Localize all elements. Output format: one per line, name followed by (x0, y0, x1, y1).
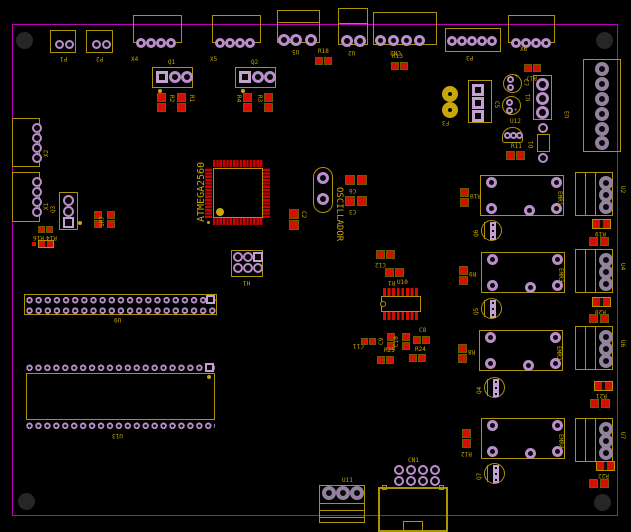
transistor-q2-label: Q2 (251, 60, 258, 66)
pad (589, 314, 598, 323)
pad (32, 133, 42, 143)
r24-label: R24 (415, 347, 426, 353)
connector-x2-label: X2 (44, 150, 50, 157)
pad (243, 263, 253, 273)
pad (354, 35, 366, 47)
pad (235, 38, 245, 48)
pad (460, 198, 469, 207)
pad (531, 38, 541, 48)
pad (507, 84, 514, 91)
mounting-hole (596, 32, 613, 49)
c12-label: C12 (375, 261, 386, 267)
q6-label: Q6 (474, 230, 480, 237)
terminal-line (585, 418, 586, 462)
pad (595, 62, 609, 76)
pad (485, 332, 496, 343)
pad (92, 40, 101, 49)
connector-u2-top-line (338, 23, 368, 24)
pad (290, 34, 302, 46)
pad (447, 36, 457, 46)
pad (32, 123, 42, 133)
cn1-label: CN1 (408, 458, 419, 464)
pad (601, 399, 610, 408)
pad (377, 356, 385, 364)
connector-p2-label: P2 (96, 55, 103, 61)
u11-label: U11 (342, 478, 353, 484)
pad (524, 64, 532, 72)
pad (391, 62, 399, 70)
r3-label: R3 (256, 95, 262, 102)
pad (146, 38, 156, 48)
c6-label: C6 (349, 187, 356, 193)
pad (487, 446, 498, 457)
pad (136, 38, 146, 48)
u11-line (319, 510, 365, 511)
r13-label: R13 (392, 54, 403, 60)
terminal-line (595, 249, 596, 293)
pad (490, 312, 496, 318)
pad (253, 252, 263, 262)
c2-label: C2 (300, 211, 306, 218)
dip-u13-pins-top (25, 363, 215, 373)
terminal-line (585, 326, 586, 370)
pad (166, 38, 176, 48)
pad (599, 277, 613, 291)
oscillator-label: OSCILLADOR (334, 187, 343, 241)
pad (289, 220, 299, 230)
connector-u5-label: U5 (292, 48, 299, 54)
r25-label: R25 (384, 348, 395, 354)
usb-tab (382, 485, 387, 490)
dip-u13-pins-bottom (25, 421, 215, 431)
pad (264, 71, 276, 83)
pad (595, 92, 609, 106)
u11-line (319, 503, 365, 504)
pad (385, 268, 394, 277)
r11-label: R11 (511, 144, 522, 150)
pad (406, 465, 416, 475)
terminal-line (595, 326, 596, 370)
pad (32, 207, 42, 217)
pad (486, 177, 497, 188)
mounting-hole (594, 494, 611, 511)
pad (38, 226, 45, 233)
pad (376, 250, 385, 259)
pad (487, 254, 498, 265)
connector-p3-label: P3 (466, 54, 473, 60)
mounting-hole (16, 32, 33, 49)
pad (402, 333, 410, 341)
dip-u13[interactable] (26, 373, 215, 420)
c7-plus: + (515, 74, 519, 80)
mcu-pin1-dot-outer (207, 221, 210, 224)
pad (245, 38, 255, 48)
pad (600, 479, 609, 488)
transistor-q3-label: Q3 (51, 206, 57, 213)
pad (493, 391, 499, 397)
q4-flat (487, 379, 488, 396)
pad (243, 93, 252, 102)
r21-label: R21 (596, 392, 607, 398)
pad (472, 97, 484, 109)
pad (599, 200, 613, 214)
q6-flat (484, 222, 485, 239)
c8-label: C8 (419, 328, 426, 334)
pad (32, 153, 42, 163)
pad (395, 268, 404, 277)
q7-flat (487, 465, 488, 482)
r10-label: R10 (470, 192, 481, 198)
pad (345, 196, 355, 206)
pad (472, 110, 484, 122)
pad (243, 103, 252, 112)
pad (55, 40, 64, 49)
c9-label: C9 (379, 338, 385, 345)
soic-u10[interactable] (381, 296, 421, 312)
pad (177, 103, 186, 112)
fuse-f3-hole (448, 92, 452, 96)
sr7-label: SR7 (100, 216, 106, 227)
pad (177, 93, 186, 102)
pad (477, 36, 487, 46)
pad (102, 40, 111, 49)
pad (516, 132, 523, 139)
connector-p1-label: P1 (60, 55, 67, 61)
pcb-canvas: P1 P2 X4 X5 U5 U2 CN2 P3 X6 R18 R13 (0, 0, 631, 532)
pad (590, 399, 599, 408)
pad (595, 107, 609, 121)
pad (506, 99, 513, 106)
pad (253, 263, 263, 273)
pad (472, 84, 484, 96)
soic-u10-label: U10 (397, 280, 408, 286)
pad (156, 38, 166, 48)
diode-d1[interactable] (537, 134, 550, 152)
pad (599, 354, 613, 368)
pad (516, 151, 525, 160)
r22-label: R22 (598, 472, 609, 478)
pad (486, 203, 497, 214)
diode-small (592, 219, 611, 229)
fuse-f3-hole (448, 108, 452, 112)
pad (400, 62, 408, 70)
pad (523, 360, 534, 371)
u1-label: U1 (526, 94, 532, 101)
pad (233, 263, 243, 273)
r1b-label: R1 (388, 279, 395, 285)
pad (322, 486, 336, 500)
connector-u2-top-label: U2 (348, 49, 355, 55)
terminal-line (585, 249, 586, 293)
pad (459, 266, 468, 275)
pad (317, 193, 329, 205)
pad-square (205, 363, 214, 372)
pad (402, 342, 410, 350)
relay-emr1-label: EMR1 (556, 191, 562, 205)
terminal-u4-label: U4 (619, 263, 625, 270)
r9-label: R9 (469, 270, 476, 276)
pad (457, 36, 467, 46)
pad (264, 103, 273, 112)
u11-line (319, 517, 365, 518)
terminal-line (595, 418, 596, 462)
pad (32, 197, 42, 207)
pin1-dot (78, 221, 82, 225)
connector-x6-label: X6 (520, 47, 527, 53)
header-u9[interactable] (24, 294, 217, 315)
pad (485, 358, 496, 369)
pad (460, 188, 469, 197)
r19-label: R19 (595, 230, 606, 236)
pad (169, 71, 181, 83)
pad (406, 476, 416, 486)
relay-emr2-label: EMR2 (555, 346, 561, 360)
pad (65, 40, 74, 49)
terminal-line (595, 172, 596, 216)
connector-u5-line (277, 22, 320, 23)
pad (63, 195, 74, 206)
pad (487, 420, 498, 431)
pad (215, 38, 225, 48)
usb-tab (439, 485, 444, 490)
pad (32, 177, 42, 187)
d1-label: D1 (529, 141, 535, 148)
pad (157, 103, 166, 112)
pad (401, 35, 412, 46)
c5-label: C5 (493, 101, 499, 108)
pad (600, 237, 609, 246)
pad (357, 175, 367, 185)
q5-label: Q5 (474, 308, 480, 315)
pad (506, 107, 513, 114)
fuse-f3-label: F3 (442, 119, 449, 125)
pad (181, 71, 193, 83)
pad (490, 234, 496, 240)
header-u9-label: U9 (114, 316, 121, 322)
pad (32, 187, 42, 197)
pad (341, 35, 353, 47)
pad (467, 36, 477, 46)
pad (600, 314, 609, 323)
diode-small (38, 240, 54, 248)
pad (264, 93, 273, 102)
mcu-pins-top (213, 160, 263, 167)
diode-small (594, 381, 613, 391)
pad (533, 64, 541, 72)
mcu-pins-bottom (213, 218, 263, 225)
r1-label: R1 (188, 95, 194, 102)
pad (418, 465, 428, 475)
pad (538, 123, 548, 133)
terminal-u6-label: U6 (619, 340, 625, 347)
pad-square (206, 295, 215, 304)
pad (541, 38, 551, 48)
pad (458, 354, 467, 363)
pad (157, 93, 166, 102)
pad (225, 38, 235, 48)
pad (336, 486, 350, 500)
soic-u10-pins-top (383, 288, 419, 296)
pad (32, 242, 36, 246)
u12-label: U12 (510, 119, 521, 125)
pad (418, 354, 426, 362)
pad (233, 252, 243, 262)
diode-small (592, 297, 611, 307)
connector-u3-label: U3 (565, 111, 571, 118)
pad (458, 344, 467, 353)
pad (599, 446, 613, 460)
pad (409, 354, 417, 362)
c3-label: C3 (349, 208, 356, 214)
relay-emr3-label: EMR3 (557, 268, 563, 282)
soic-u10-pins-bottom (383, 312, 419, 320)
pad (350, 486, 364, 500)
pad (413, 336, 421, 344)
pad (589, 237, 598, 246)
header-h1-label: H1 (243, 279, 250, 285)
pad (536, 78, 549, 91)
pad (63, 217, 74, 228)
transistor-q1-label: Q1 (168, 60, 175, 66)
pad (430, 465, 440, 475)
c7-label: C7 (522, 79, 528, 86)
pad (361, 338, 368, 345)
pad (386, 250, 395, 259)
soic-u10-notch (380, 301, 386, 307)
terminal-line (585, 172, 586, 216)
pad (595, 77, 609, 91)
terminal-u7-label: U7 (619, 432, 625, 439)
c10-label: C10 (394, 336, 400, 347)
relay-emr4-label: EMR4 (557, 434, 563, 448)
pad (595, 122, 609, 136)
connector-x5-label: X5 (210, 57, 217, 63)
mcu-pins-right (263, 168, 270, 218)
pad (525, 282, 536, 293)
pad (487, 280, 498, 291)
pad (414, 35, 425, 46)
q5-flat (484, 300, 485, 317)
pad (345, 175, 355, 185)
pad (315, 57, 323, 65)
pad (32, 143, 42, 153)
pad (394, 476, 404, 486)
pad (551, 177, 562, 188)
pad (324, 57, 332, 65)
pad (595, 136, 609, 150)
mcu-label: ATMEGA2560 (197, 162, 207, 222)
pad (493, 477, 499, 483)
q7-label: Q7 (477, 473, 483, 480)
pad (418, 476, 428, 486)
pad (538, 153, 548, 163)
r12-label: R12 (461, 450, 472, 456)
pad (536, 92, 549, 105)
mcu-pin1-dot (216, 208, 224, 216)
pad (375, 35, 386, 46)
terminal-u2-right-label: U2 (619, 186, 625, 193)
pad (536, 106, 549, 119)
pad (525, 448, 536, 459)
pad (394, 465, 404, 475)
pad (422, 336, 430, 344)
pad (386, 356, 394, 364)
pad (462, 429, 471, 438)
r18-label: R18 (318, 49, 329, 55)
usb-inner (403, 521, 423, 531)
r2-label: R2 (168, 95, 174, 102)
pad (46, 226, 53, 233)
connector-x4-label: X4 (131, 57, 138, 63)
pad (239, 71, 251, 83)
pad (507, 76, 514, 83)
diode-small (596, 461, 615, 471)
pad (459, 276, 468, 285)
pad (107, 211, 115, 219)
r8-label: R8 (468, 348, 475, 354)
pad (388, 35, 399, 46)
pad (305, 34, 317, 46)
c5-plus: + (514, 108, 518, 114)
pad (589, 479, 598, 488)
pad (156, 71, 168, 83)
pad (552, 254, 563, 265)
pad (487, 36, 497, 46)
pad (462, 439, 471, 448)
pad (243, 252, 253, 262)
pad (357, 196, 367, 206)
pad (63, 206, 74, 217)
pad (289, 209, 299, 219)
dip-u13-label: U13 (112, 432, 123, 438)
pad (506, 151, 515, 160)
pad (107, 220, 115, 228)
r4-label: R4 (235, 95, 241, 102)
pad (550, 332, 561, 343)
q4-label: Q4 (477, 387, 483, 394)
mounting-hole (18, 493, 35, 510)
pad (369, 338, 376, 345)
pad (524, 205, 535, 216)
pad (552, 420, 563, 431)
pin1-dot (207, 375, 211, 379)
pad (317, 172, 329, 184)
pad (278, 34, 290, 46)
pad (252, 71, 264, 83)
